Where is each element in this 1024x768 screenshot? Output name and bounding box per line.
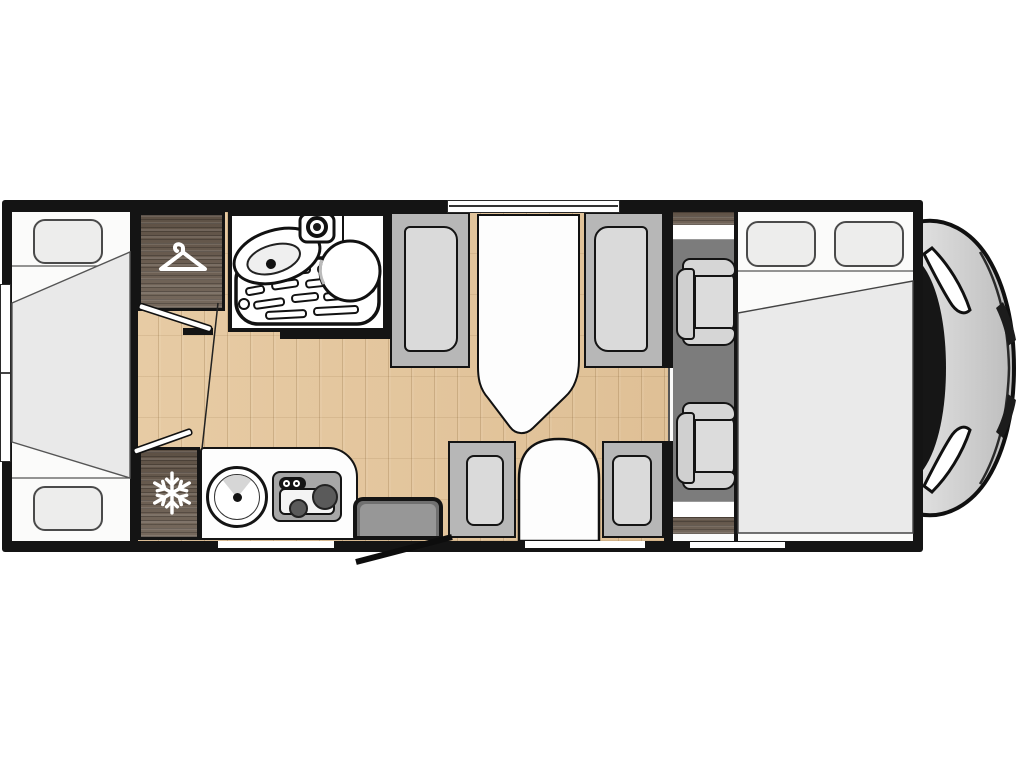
kitchen-hob (272, 471, 342, 522)
cab-trim-top (673, 212, 735, 225)
dinette-window (447, 200, 620, 213)
kitchen-sink (206, 466, 268, 528)
cab-trim-bottom (673, 517, 735, 534)
bathroom-fixtures (232, 216, 383, 328)
dinette-bench-right-cushion (594, 226, 648, 352)
hob-burner-small (289, 499, 308, 518)
lounge-window (525, 541, 645, 548)
kitchen-window (218, 541, 334, 548)
front-bed-pillow-right (834, 221, 904, 267)
cab-seat-backrest (676, 268, 695, 340)
dinette-bench-left-cushion (404, 226, 458, 352)
cab-sill-bottom (673, 501, 735, 517)
wardrobe (138, 212, 225, 311)
dinette-table (470, 200, 590, 445)
hob-knob-1 (283, 480, 290, 487)
snowflake-icon (149, 470, 195, 516)
cab-seat-cushion (694, 416, 735, 476)
door-track-end (183, 328, 213, 335)
hob-burner-large (312, 484, 338, 510)
bedroom-partition-wall (130, 212, 138, 541)
fridge (138, 447, 200, 540)
cab-seat-driver (676, 402, 736, 490)
bathroom (228, 212, 390, 332)
cab-partition-bottom (664, 441, 673, 541)
side-seat-left-cushion (466, 455, 504, 526)
cab-seat-backrest (676, 412, 695, 484)
entrance-step (353, 497, 443, 540)
cab-seat-cushion (694, 272, 735, 332)
hanger-icon (153, 229, 213, 289)
cab-partition-top (664, 212, 673, 368)
side-seat-middle (516, 434, 602, 541)
front-bed-pillow-left (746, 221, 816, 267)
rear-bed-pillow-top (33, 219, 103, 264)
rear-window-divider (1, 372, 10, 374)
side-seat-right-cushion (612, 455, 652, 526)
rear-bed-pillow-bottom (33, 486, 103, 531)
sink-drain (233, 493, 242, 502)
cab-door-window (690, 542, 785, 548)
floorplan-canvas (0, 0, 1024, 768)
cab-seat-passenger (676, 258, 736, 346)
bathroom-threshold (280, 330, 390, 339)
dinette-window-frame-line (449, 205, 618, 207)
vehicle-nose (910, 212, 1024, 528)
cab-sill-top (673, 225, 735, 240)
shower-head-icon (300, 216, 334, 242)
hob-knob-2 (293, 480, 300, 487)
cab-step-edge (668, 368, 670, 441)
toilet (320, 241, 380, 301)
hob-controls (279, 477, 306, 490)
entrance-step-mat (360, 504, 436, 536)
